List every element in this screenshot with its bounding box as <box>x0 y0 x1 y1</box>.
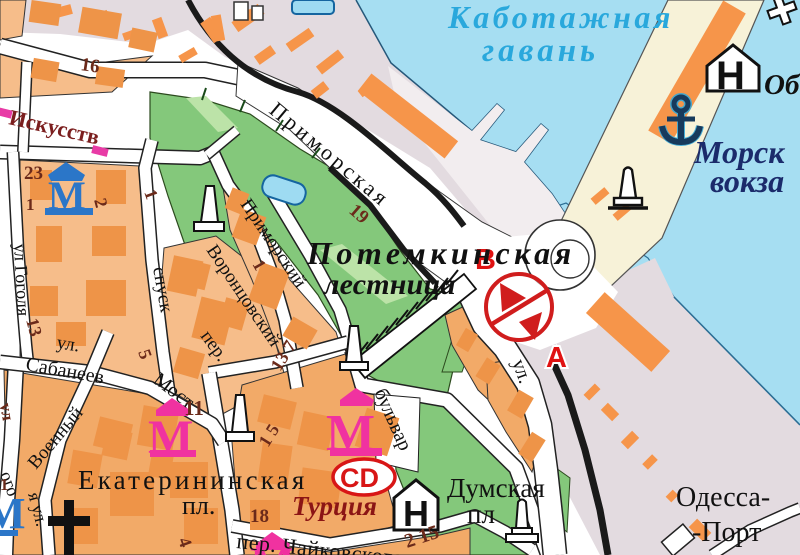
svg-text:Об: Об <box>764 69 800 101</box>
svg-text:1: 1 <box>26 195 35 214</box>
svg-text:16: 16 <box>79 54 101 77</box>
svg-text:вокза: вокза <box>710 163 784 199</box>
svg-text:пл: пл <box>467 499 495 529</box>
svg-text:11: 11 <box>184 396 204 420</box>
svg-text:-Порт: -Порт <box>692 517 761 548</box>
svg-text:Одесса-: Одесса- <box>676 482 770 513</box>
svg-text:пл.: пл. <box>182 491 215 520</box>
svg-text:А: А <box>546 342 567 374</box>
svg-text:Каботажная: Каботажная <box>447 0 674 35</box>
svg-text:Думская: Думская <box>447 473 545 503</box>
svg-text:гавань: гавань <box>482 33 599 69</box>
svg-text:CD: CD <box>340 463 379 493</box>
svg-text:1: 1 <box>0 475 9 494</box>
svg-text:18: 18 <box>250 506 269 527</box>
svg-text:23: 23 <box>24 163 43 184</box>
svg-text:H: H <box>716 54 745 98</box>
svg-text:Потемкинская: Потемкинская <box>306 235 576 271</box>
svg-text:ул Гоголя: ул Гоголя <box>10 243 34 316</box>
svg-text:Турция: Турция <box>292 491 377 521</box>
svg-text:ул.: ул. <box>55 332 81 356</box>
svg-text:лестница: лестница <box>322 268 456 301</box>
